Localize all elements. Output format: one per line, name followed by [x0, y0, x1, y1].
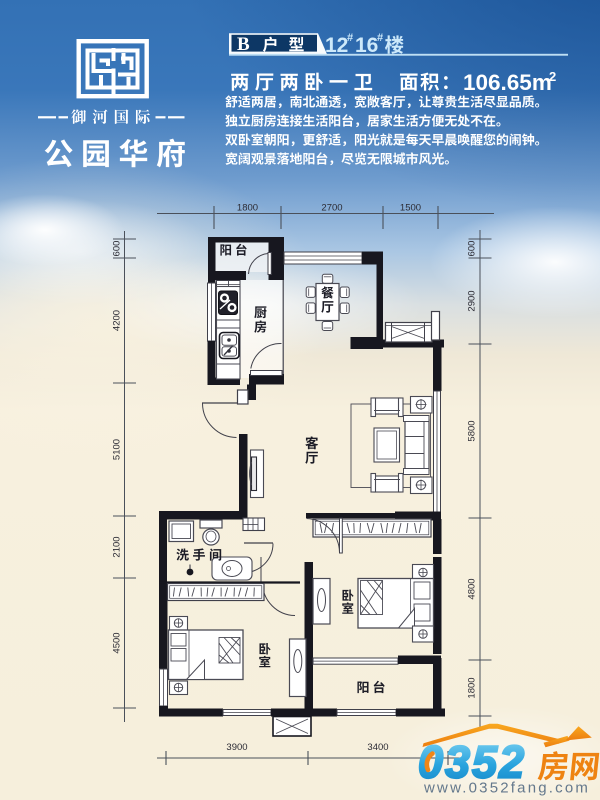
svg-text:5100: 5100	[112, 439, 123, 460]
svg-text:106.65m: 106.65m	[463, 70, 552, 95]
svg-text:600: 600	[112, 241, 123, 257]
svg-text:2: 2	[549, 69, 556, 84]
svg-text:www.0352fang.com: www.0352fang.com	[423, 780, 590, 797]
svg-text:3900: 3900	[226, 742, 247, 753]
svg-text:12: 12	[325, 34, 348, 57]
svg-text:1800: 1800	[467, 677, 478, 698]
svg-text:16: 16	[355, 34, 378, 57]
svg-text:4200: 4200	[112, 310, 123, 331]
svg-text:600: 600	[467, 241, 478, 257]
svg-text:1800: 1800	[237, 203, 258, 214]
svg-text:4800: 4800	[467, 578, 478, 599]
svg-text:2700: 2700	[321, 203, 342, 214]
svg-text:#: #	[347, 32, 353, 44]
svg-text:#: #	[377, 32, 383, 44]
svg-text:5800: 5800	[467, 420, 478, 441]
svg-text:2100: 2100	[112, 536, 123, 557]
svg-text:B: B	[237, 34, 250, 55]
svg-text:3400: 3400	[367, 742, 388, 753]
svg-text:4500: 4500	[112, 632, 123, 653]
svg-text:1500: 1500	[400, 203, 421, 214]
svg-text:2900: 2900	[467, 290, 478, 311]
